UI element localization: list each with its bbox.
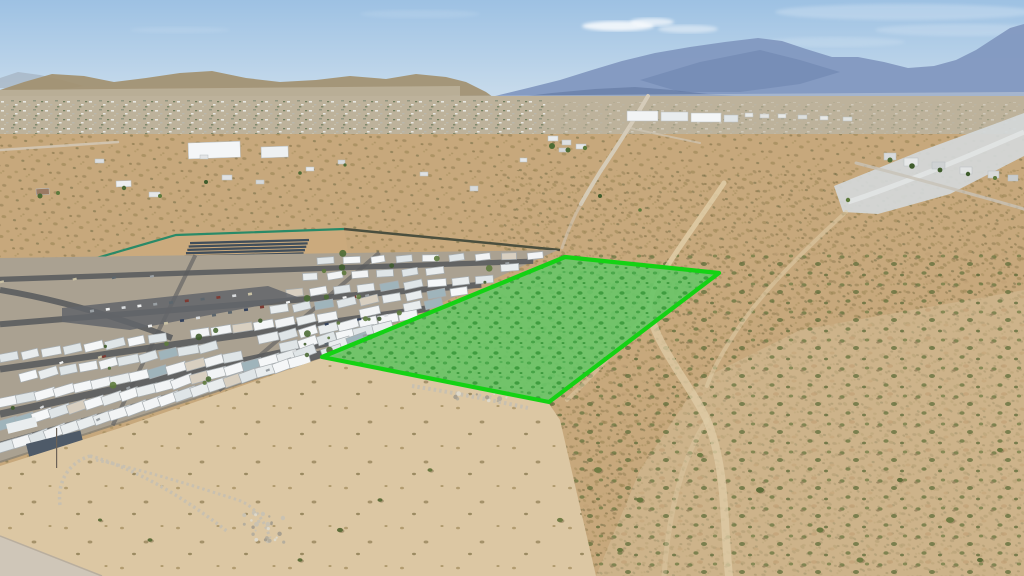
park-tree [258, 319, 262, 323]
desert-bush [817, 527, 824, 532]
desert-bush [337, 528, 343, 532]
rock [242, 513, 246, 517]
desert-bush [946, 517, 954, 523]
mobile-home [502, 253, 517, 260]
park-tree [397, 310, 402, 315]
desert-bush [594, 467, 602, 473]
rock [476, 393, 478, 395]
park-tree [213, 328, 218, 333]
desert-bush [298, 558, 303, 562]
parked-car [137, 304, 141, 307]
parked-car [164, 322, 168, 325]
parked-car [196, 316, 200, 319]
rock [270, 521, 273, 524]
park-tree [327, 337, 330, 340]
park-tree [339, 264, 345, 270]
park-tree [322, 269, 326, 273]
mobile-home [351, 270, 368, 278]
park-tree [377, 317, 381, 321]
rock [489, 395, 491, 397]
parked-car [232, 294, 236, 297]
parked-car [90, 309, 94, 312]
park-tree [389, 263, 394, 268]
mobile-home [376, 269, 393, 277]
park-tree [305, 353, 309, 357]
parked-car [212, 314, 216, 317]
parked-car [180, 319, 184, 322]
desert-bush [98, 519, 102, 522]
park-tree [11, 406, 15, 410]
mobile-home [317, 257, 334, 265]
parked-car [248, 292, 252, 295]
aerial-photo-desert-parcel [0, 0, 1024, 576]
park-tree [356, 294, 361, 299]
park-tree [196, 334, 203, 341]
rock [261, 512, 265, 516]
rock [456, 391, 461, 396]
scene-svg [0, 0, 1024, 576]
rock [505, 396, 507, 398]
rock [264, 538, 267, 541]
rock [276, 537, 278, 539]
rock [257, 520, 260, 523]
rock [478, 394, 481, 397]
park-tree [104, 345, 107, 348]
desert-bush [697, 453, 703, 457]
desert-bush [148, 538, 153, 542]
rock [282, 541, 285, 544]
rock [493, 393, 495, 395]
rock [254, 513, 257, 516]
desert-bush [637, 497, 644, 502]
parked-car [200, 298, 204, 301]
park-tree [339, 250, 346, 257]
mobile-home [452, 277, 470, 286]
rock [267, 539, 271, 543]
rock [274, 538, 277, 541]
rock [254, 538, 258, 542]
rock [277, 532, 281, 536]
desert-bush [756, 487, 764, 493]
rock [281, 516, 285, 520]
park-tree [363, 316, 368, 321]
parked-car [260, 305, 264, 308]
parked-car [185, 299, 189, 302]
utility-pole [56, 428, 57, 468]
parked-car [216, 296, 220, 299]
rock [497, 396, 502, 401]
park-tree [434, 256, 440, 262]
rock [268, 515, 270, 517]
mobile-home [427, 278, 446, 287]
mobile-home [396, 255, 413, 263]
park-tree [486, 265, 493, 272]
rock [267, 527, 270, 530]
park-tree [110, 382, 117, 389]
desert-bush [997, 448, 1003, 452]
park-tree [108, 367, 111, 370]
rock [266, 522, 271, 527]
desert-bush [557, 518, 563, 522]
park-tree [164, 342, 169, 347]
park-tree [324, 294, 329, 299]
park-tree [483, 281, 486, 284]
mobile-home [343, 256, 360, 263]
desert-bush [428, 468, 433, 472]
rock [243, 523, 246, 526]
rock [453, 395, 457, 399]
parked-car [169, 301, 173, 304]
mobile-home [475, 253, 491, 261]
mobile-home [527, 251, 543, 259]
mobile-home [501, 263, 520, 271]
park-tree [342, 271, 347, 276]
rock [255, 530, 257, 532]
desert-bush [897, 478, 903, 482]
desert-bush [617, 548, 623, 552]
desert-bush [857, 557, 864, 562]
park-tree [203, 381, 207, 385]
desert-bush [378, 498, 383, 502]
desert-bush [977, 558, 983, 562]
parked-car [228, 311, 232, 314]
rock [251, 526, 254, 529]
parked-car [244, 308, 248, 311]
rock [251, 533, 254, 536]
mobile-home [303, 273, 318, 281]
rock [485, 395, 489, 399]
parked-car [148, 324, 152, 327]
parked-car [121, 306, 125, 309]
park-tree [304, 330, 311, 337]
park-tree [304, 343, 307, 346]
park-tree [337, 321, 341, 325]
parked-car [106, 308, 110, 311]
park-tree [304, 295, 311, 302]
rock [250, 519, 253, 522]
parked-car [153, 303, 157, 306]
park-tree [206, 376, 212, 382]
